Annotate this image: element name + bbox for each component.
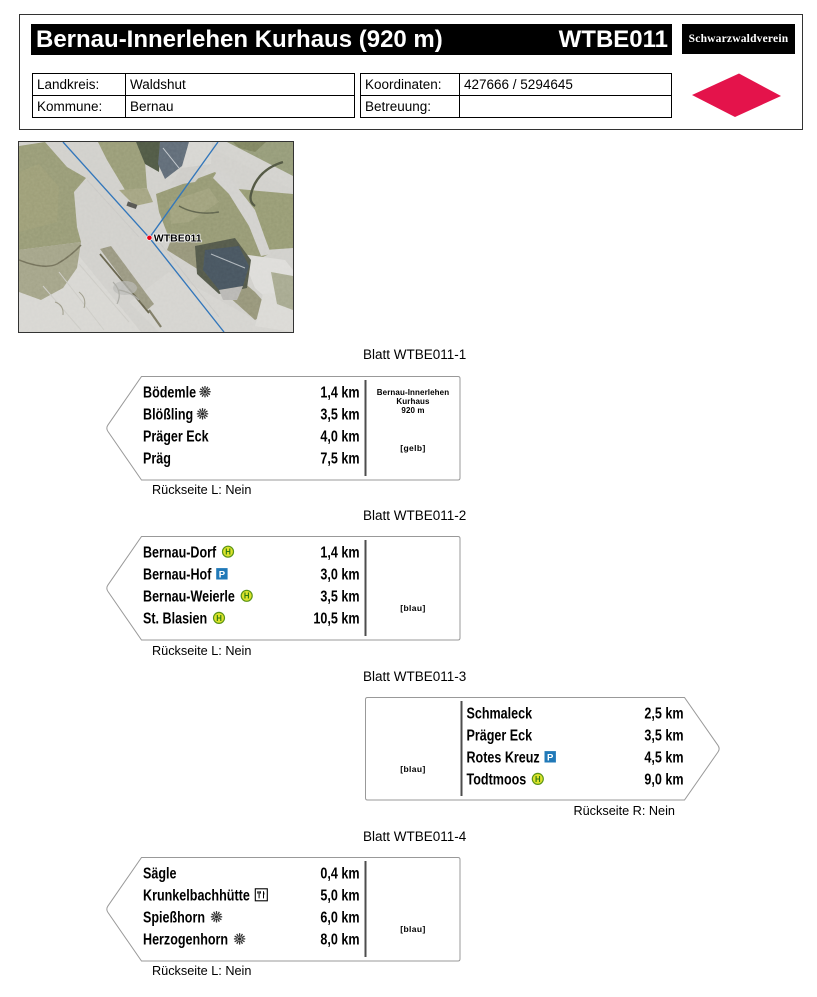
svg-text:4,0 km: 4,0 km: [320, 428, 359, 445]
svg-text:1,4 km: 1,4 km: [320, 544, 359, 561]
svg-text:8,0 km: 8,0 km: [320, 931, 359, 948]
svg-text:Todtmoos: Todtmoos: [466, 771, 526, 788]
svg-text:6,0 km: 6,0 km: [320, 909, 359, 926]
svg-text:0,4 km: 0,4 km: [320, 865, 359, 882]
svg-text:10,5 km: 10,5 km: [313, 610, 359, 627]
svg-text:Präg: Präg: [143, 450, 171, 467]
svg-text:3,5 km: 3,5 km: [644, 727, 683, 744]
svg-text:Bernau-Weierle: Bernau-Weierle: [143, 588, 235, 605]
svg-text:St. Blasien: St. Blasien: [143, 610, 207, 627]
svg-text:3,5 km: 3,5 km: [320, 588, 359, 605]
svg-text:4,5 km: 4,5 km: [644, 749, 683, 766]
svg-text:Blößling: Blößling: [143, 406, 193, 423]
svg-text:Bödemle: Bödemle: [143, 384, 196, 401]
svg-text:1,4 km: 1,4 km: [320, 384, 359, 401]
svg-text:3,0 km: 3,0 km: [320, 566, 359, 583]
svg-text:Schmaleck: Schmaleck: [466, 705, 532, 722]
svg-text:Sägle: Sägle: [143, 865, 177, 882]
svg-text:3,5 km: 3,5 km: [320, 406, 359, 423]
svg-text:Spießhorn: Spießhorn: [143, 909, 205, 926]
svg-text:Bernau-Hof: Bernau-Hof: [143, 566, 212, 583]
svg-text:WTBE011: WTBE011: [154, 233, 202, 245]
svg-text:9,0 km: 9,0 km: [644, 771, 683, 788]
svg-text:Präger Eck: Präger Eck: [466, 727, 532, 744]
svg-text:Präger Eck: Präger Eck: [143, 428, 209, 445]
svg-text:Krunkelbachhütte: Krunkelbachhütte: [143, 887, 250, 904]
svg-text:5,0 km: 5,0 km: [320, 887, 359, 904]
svg-text:Rotes Kreuz: Rotes Kreuz: [466, 749, 539, 766]
svg-text:7,5 km: 7,5 km: [320, 450, 359, 467]
svg-text:Bernau-Dorf: Bernau-Dorf: [143, 544, 217, 561]
svg-text:Herzogenhorn: Herzogenhorn: [143, 931, 228, 948]
svg-text:2,5 km: 2,5 km: [644, 705, 683, 722]
